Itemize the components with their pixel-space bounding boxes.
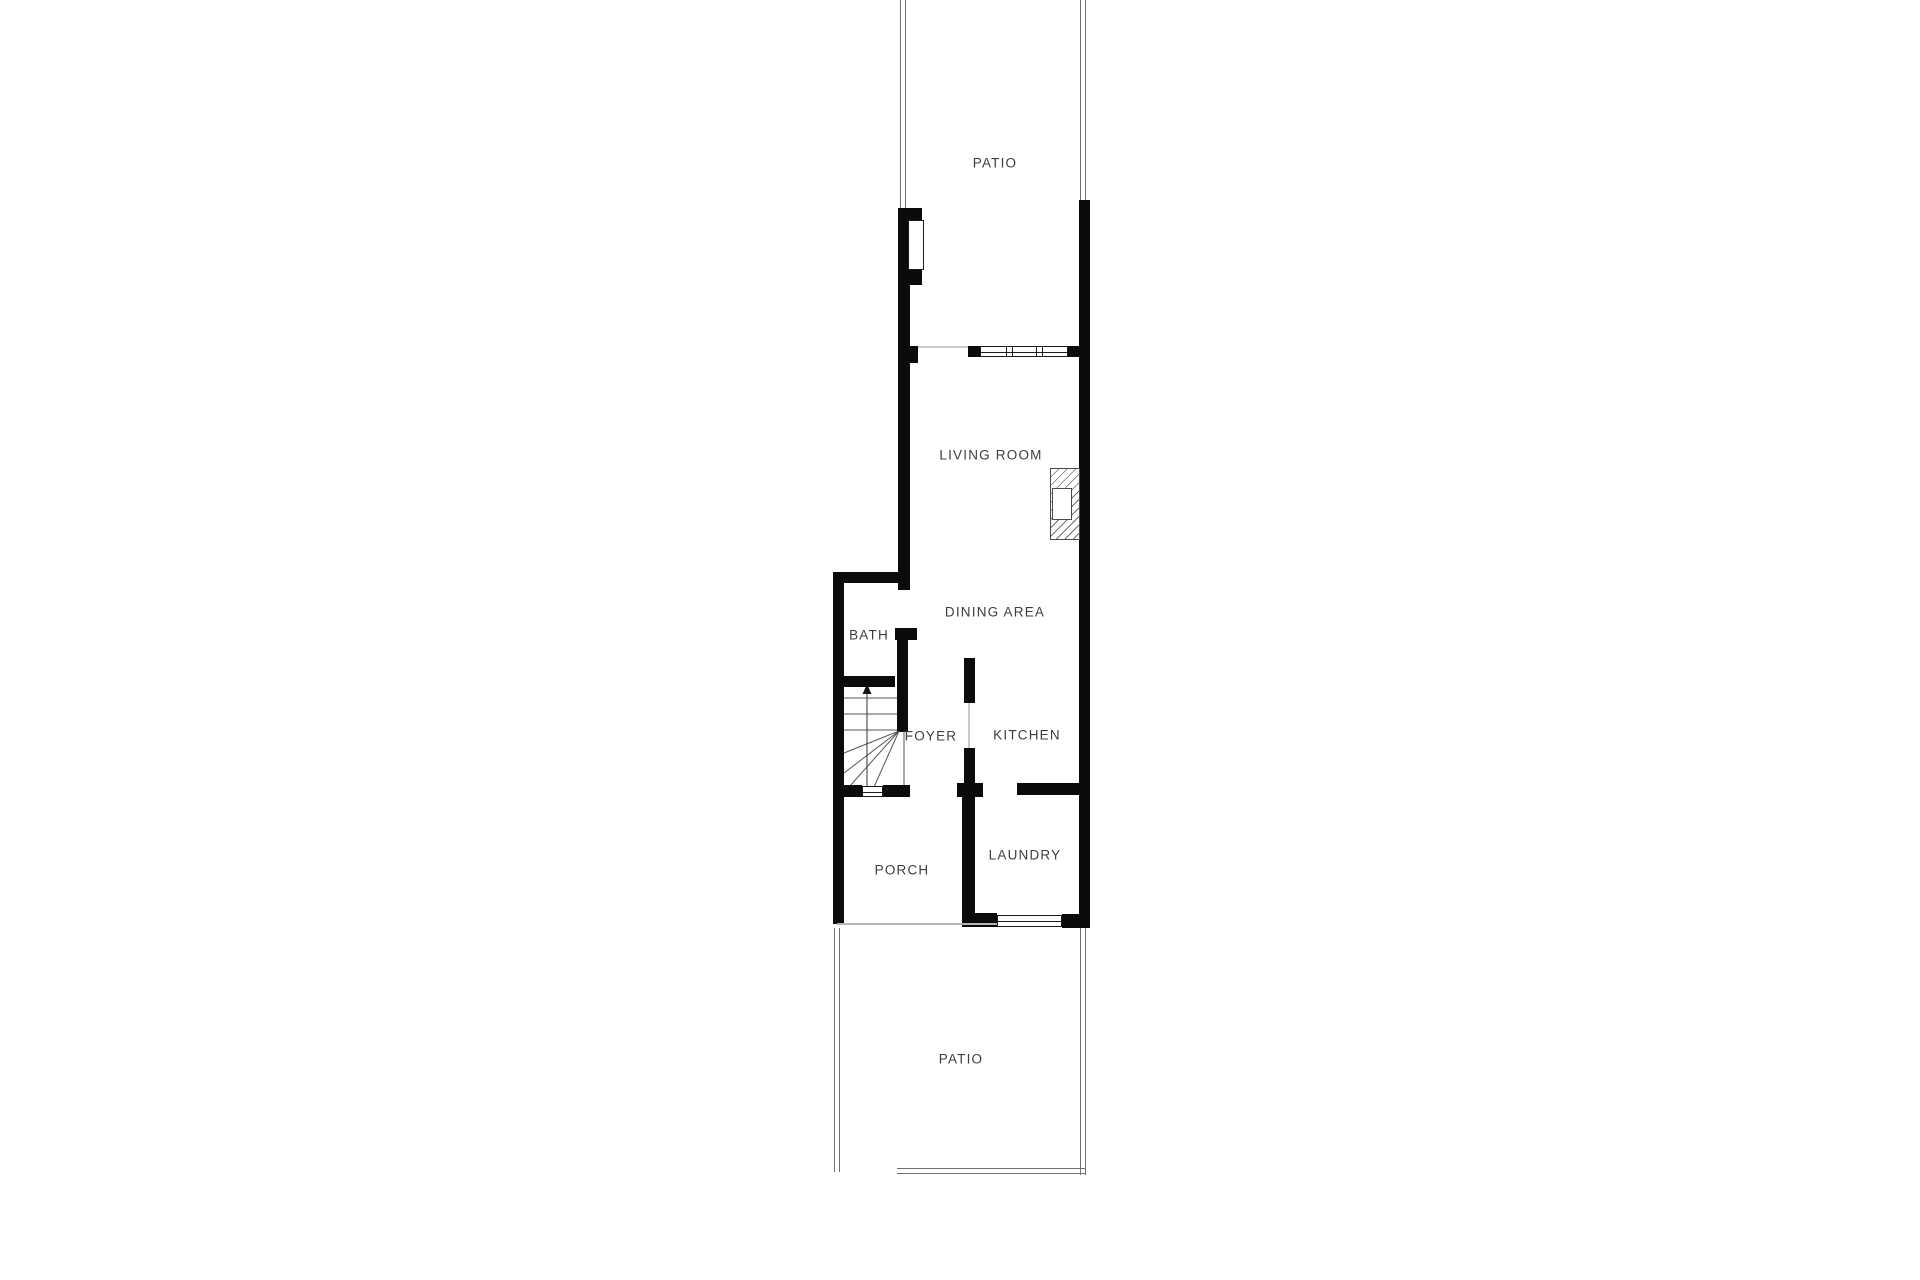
wall-laundry-top bbox=[1017, 783, 1089, 795]
window-glazing-line bbox=[981, 352, 1067, 353]
patio-top-left-boundary bbox=[900, 0, 906, 208]
window-symbol bbox=[980, 346, 1068, 357]
patio-bottom-right-boundary bbox=[1080, 928, 1086, 1175]
wall-kitchen-upper bbox=[964, 658, 975, 703]
room-label-laundry: LAUNDRY bbox=[989, 848, 1062, 863]
room-label-foyer: FOYER bbox=[905, 729, 958, 744]
room-label-dining-area: DINING AREA bbox=[945, 605, 1045, 620]
window-symbol bbox=[862, 786, 883, 797]
patio-bottom-left-boundary bbox=[834, 928, 840, 1172]
fireplace-firebox bbox=[1052, 488, 1072, 520]
door-opening-line bbox=[918, 346, 968, 348]
door-opening-line bbox=[968, 703, 970, 748]
window-divider bbox=[1006, 347, 1013, 356]
wall bbox=[833, 785, 862, 797]
window-symbol bbox=[997, 915, 1062, 927]
wall-right-exterior bbox=[1079, 200, 1090, 928]
stairs-up-arrow bbox=[863, 684, 872, 694]
floor-plan: PATIO LIVING ROOM DINING AREA BATH FOYER… bbox=[0, 0, 1920, 1280]
room-label-living-room: LIVING ROOM bbox=[939, 448, 1042, 463]
porch-edge-line bbox=[837, 923, 997, 925]
patio-top-right-boundary bbox=[1080, 0, 1086, 200]
wall bbox=[898, 285, 910, 347]
room-label-patio-top: PATIO bbox=[973, 156, 1018, 171]
patio-bottom-edge-boundary bbox=[897, 1168, 1086, 1174]
wall bbox=[883, 785, 910, 797]
wall bbox=[968, 346, 980, 357]
wall-left-living bbox=[898, 347, 910, 590]
window-glazing-line bbox=[863, 792, 882, 793]
wall-porch-laundry bbox=[962, 783, 975, 913]
wall bbox=[1062, 914, 1089, 928]
room-label-kitchen: KITCHEN bbox=[993, 728, 1061, 743]
room-label-bath: BATH bbox=[849, 628, 889, 643]
window-symbol bbox=[908, 220, 924, 270]
wall-bath-top bbox=[833, 572, 910, 583]
window-glazing-line bbox=[998, 921, 1061, 922]
window-divider bbox=[1036, 347, 1043, 356]
staircase bbox=[833, 676, 913, 800]
room-label-patio-bottom: PATIO bbox=[939, 1052, 984, 1067]
room-label-porch: PORCH bbox=[875, 863, 930, 878]
